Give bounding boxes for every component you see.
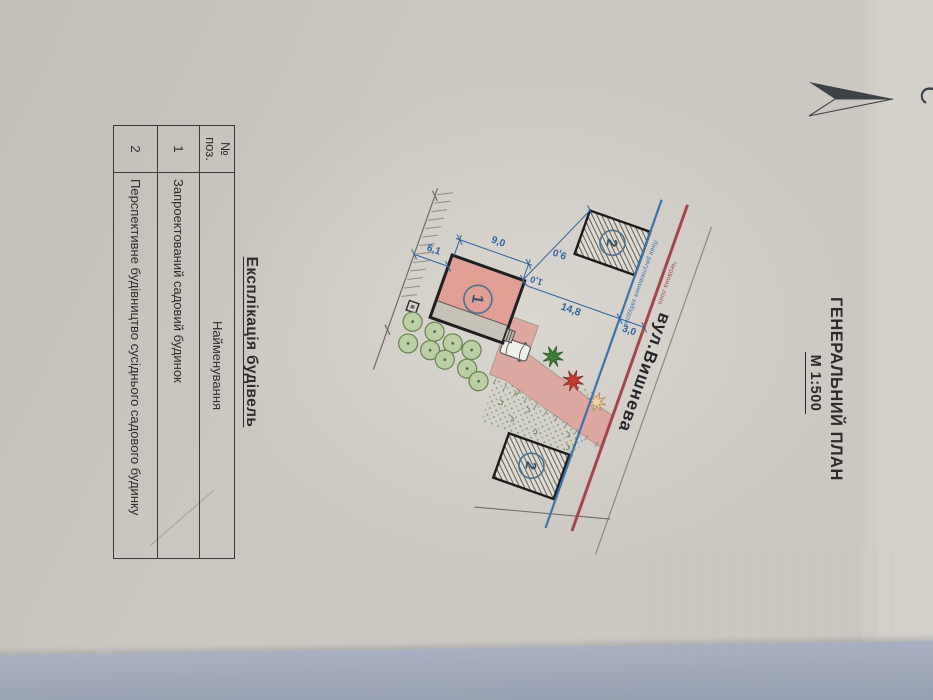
dim-corner-offset: 1,0 [529,274,544,288]
drawing-title: ГЕНЕРАЛЬНИЙ ПЛАН [826,297,845,469]
boundary-tick [382,325,392,335]
photographed-drawing-sheet: 9,0 6,1 9,0 1,0 14,8 3,0 Лінія регулюван… [0,0,933,700]
north-label: С [917,86,933,105]
explication-block: Експлікація будівель № поз. Найменування… [113,125,260,559]
col-header-name: Найменування [200,173,235,559]
row-name: Перспективне будівництво сусіднього садо… [114,173,158,559]
explication-table: № поз. Найменування 1 Запроектований сад… [113,125,235,559]
row-position: 2 [114,126,158,173]
col-header-position: № поз. [200,126,235,173]
boundary-tick [430,191,440,201]
dim-front-setback: 14,8 [559,301,582,319]
explication-title: Експлікація будівель [242,125,260,559]
well [406,300,419,313]
table-row: 1 Запроектований садовий будинок [158,126,200,559]
north-arrow-icon [805,76,897,122]
row-name: Запроектований садовий будинок [158,173,200,559]
drawing-scale: М 1:500 [805,352,823,415]
dim-rear-setback: 6,1 [425,243,442,258]
table-row: 2 Перспективне будівництво сусіднього са… [114,126,158,559]
row-position: 1 [158,126,200,173]
drawing-title-block: ГЕНЕРАЛЬНИЙ ПЛАН М 1:500 [805,297,845,469]
dim-building-side: 9,0 [490,235,507,250]
street-far-edge-line [596,227,712,554]
